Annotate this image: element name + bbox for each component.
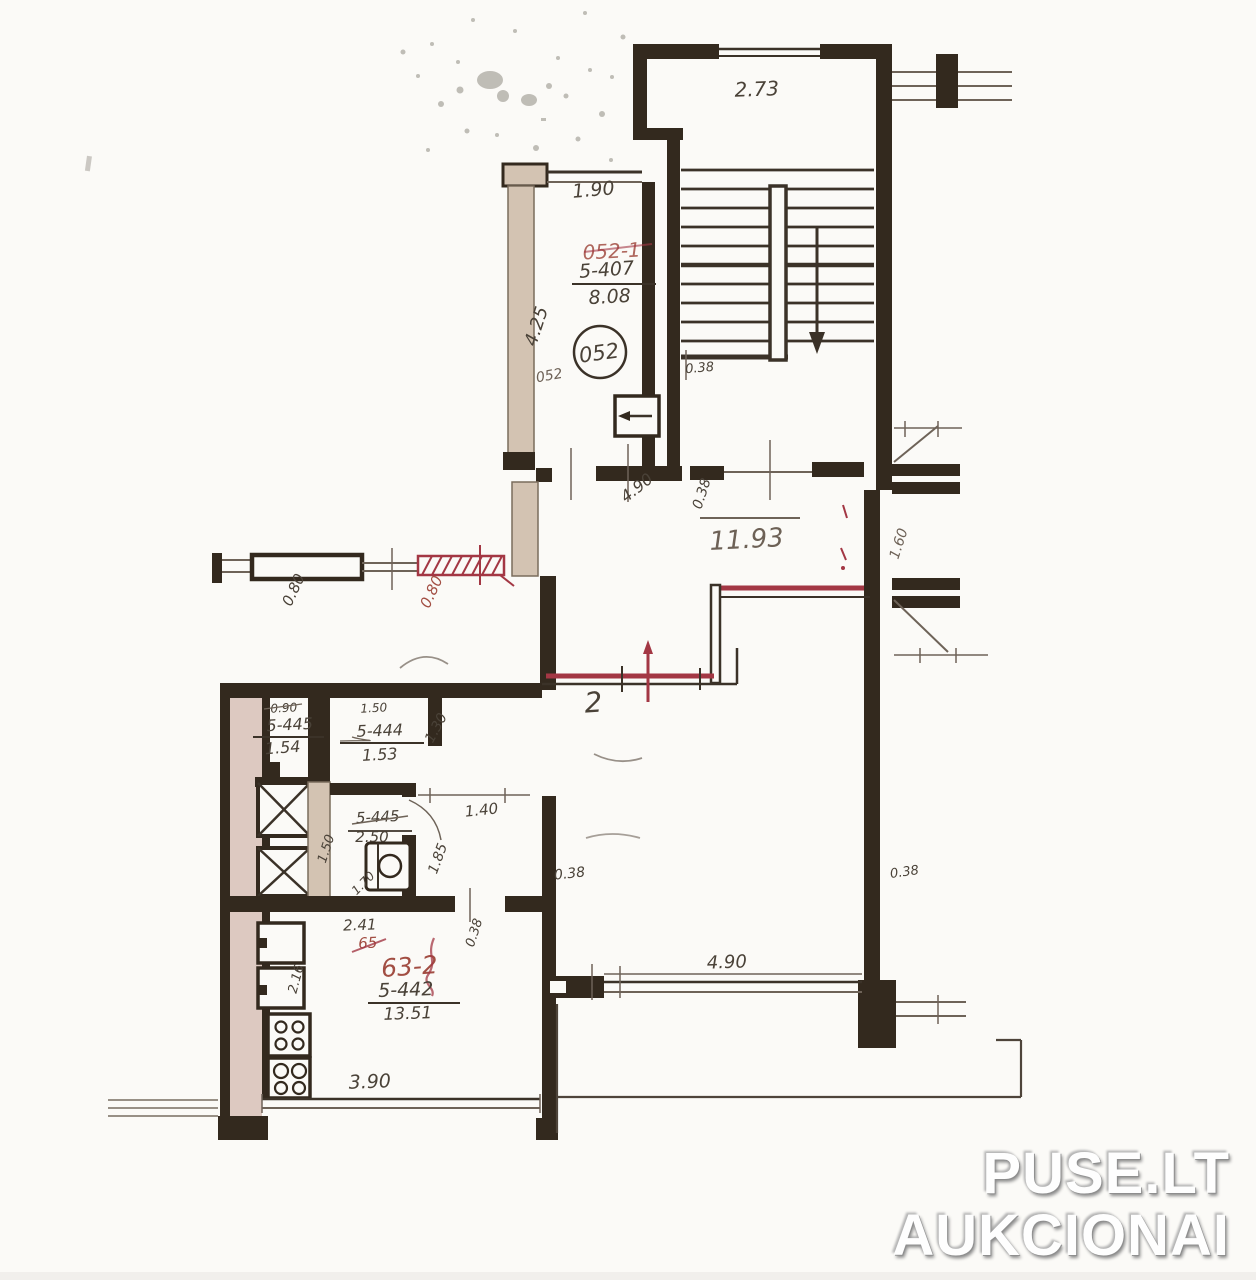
label-bath-apt: 5-445 <box>356 807 400 827</box>
label-hall-area: 11.93 <box>709 523 785 557</box>
watermark-line2: AUKCIONAI <box>892 1205 1230 1266</box>
label-room-number: 2 <box>583 685 603 719</box>
bottom-edge <box>0 1272 1256 1280</box>
label-kitchen-area: 13.51 <box>383 1003 432 1025</box>
label-block-width: 2.41 <box>343 915 377 934</box>
label-stairwell-width: 2.73 <box>734 76 779 102</box>
vent-shaft <box>258 783 310 836</box>
hall-top-wall: 4.90 0.38 11.93 <box>571 440 864 570</box>
label-vestibule-circle: 052 <box>578 338 621 367</box>
label-right-niche: 1.60 <box>887 526 912 561</box>
red-partition: 2 <box>540 585 870 838</box>
label-stair-tread-dim: 0.38 <box>685 360 715 377</box>
label-bath-area: 2.50 <box>355 828 388 846</box>
room-2: 4.90 0.38 0.38 <box>536 796 1021 1140</box>
label-vestibule-small: 052 <box>535 366 564 386</box>
label-corridor-depth: 1.85 <box>425 841 451 876</box>
floorplan-drawing: 2.73 0.38 1.60 <box>0 0 1256 1280</box>
window <box>252 555 362 579</box>
label-storage-depth: 1.30 <box>422 711 451 746</box>
label-window-right-red: 0.80 <box>416 573 446 611</box>
label-hall-opening-b: 0.38 <box>690 476 715 511</box>
hall-west-structure <box>512 468 556 690</box>
label-room2-wall-b: 0.38 <box>889 863 920 882</box>
stray-lines <box>108 1100 218 1116</box>
west-shear-wall <box>228 698 262 1128</box>
entrance-door-box <box>615 396 659 436</box>
red-check-marks <box>841 505 847 570</box>
vent-shaft <box>258 848 310 896</box>
label-room2-window: 4.90 <box>706 951 747 973</box>
balcony <box>557 1004 1021 1133</box>
scan-noise <box>85 11 626 171</box>
vestibule-052: 1.90 052-1 5-407 8.08 4.25 052 052 <box>503 164 659 481</box>
label-wc-apt: 5-445 <box>266 714 313 735</box>
label-wc-area: 1.54 <box>264 737 301 758</box>
label-kitchen-window: 3.90 <box>348 1070 391 1093</box>
west-window-wall: 0.80 0.80 <box>212 545 514 611</box>
label-corridor-width: 1.40 <box>464 799 499 820</box>
label-storage-apt: 5-444 <box>356 720 403 741</box>
kitchen: 65 63-2 5-442 13.51 2.16 3.90 <box>108 923 540 1116</box>
label-vestibule-apt: 5-407 <box>578 257 635 283</box>
stairwell: 2.73 0.38 <box>633 44 892 490</box>
stair-stringer <box>770 186 786 360</box>
kitchen-stove <box>268 1014 310 1098</box>
label-storage-area: 1.53 <box>361 744 398 765</box>
label-room2-wall-a: 0.38 <box>553 864 586 883</box>
label-vestibule-area: 8.08 <box>588 285 631 309</box>
label-storage-width: 1.50 <box>360 700 388 715</box>
watermark: PUSE.LT AUKCIONAI <box>892 1143 1230 1266</box>
label-kitchen-apt: 5-442 <box>378 978 434 1002</box>
floorplan-scan: 2.73 0.38 1.60 <box>0 0 1256 1280</box>
label-vestibule-width: 1.90 <box>571 177 615 203</box>
watermark-line1: PUSE.LT <box>892 1143 1230 1204</box>
label-door-wall-dim: 0.38 <box>463 917 486 949</box>
